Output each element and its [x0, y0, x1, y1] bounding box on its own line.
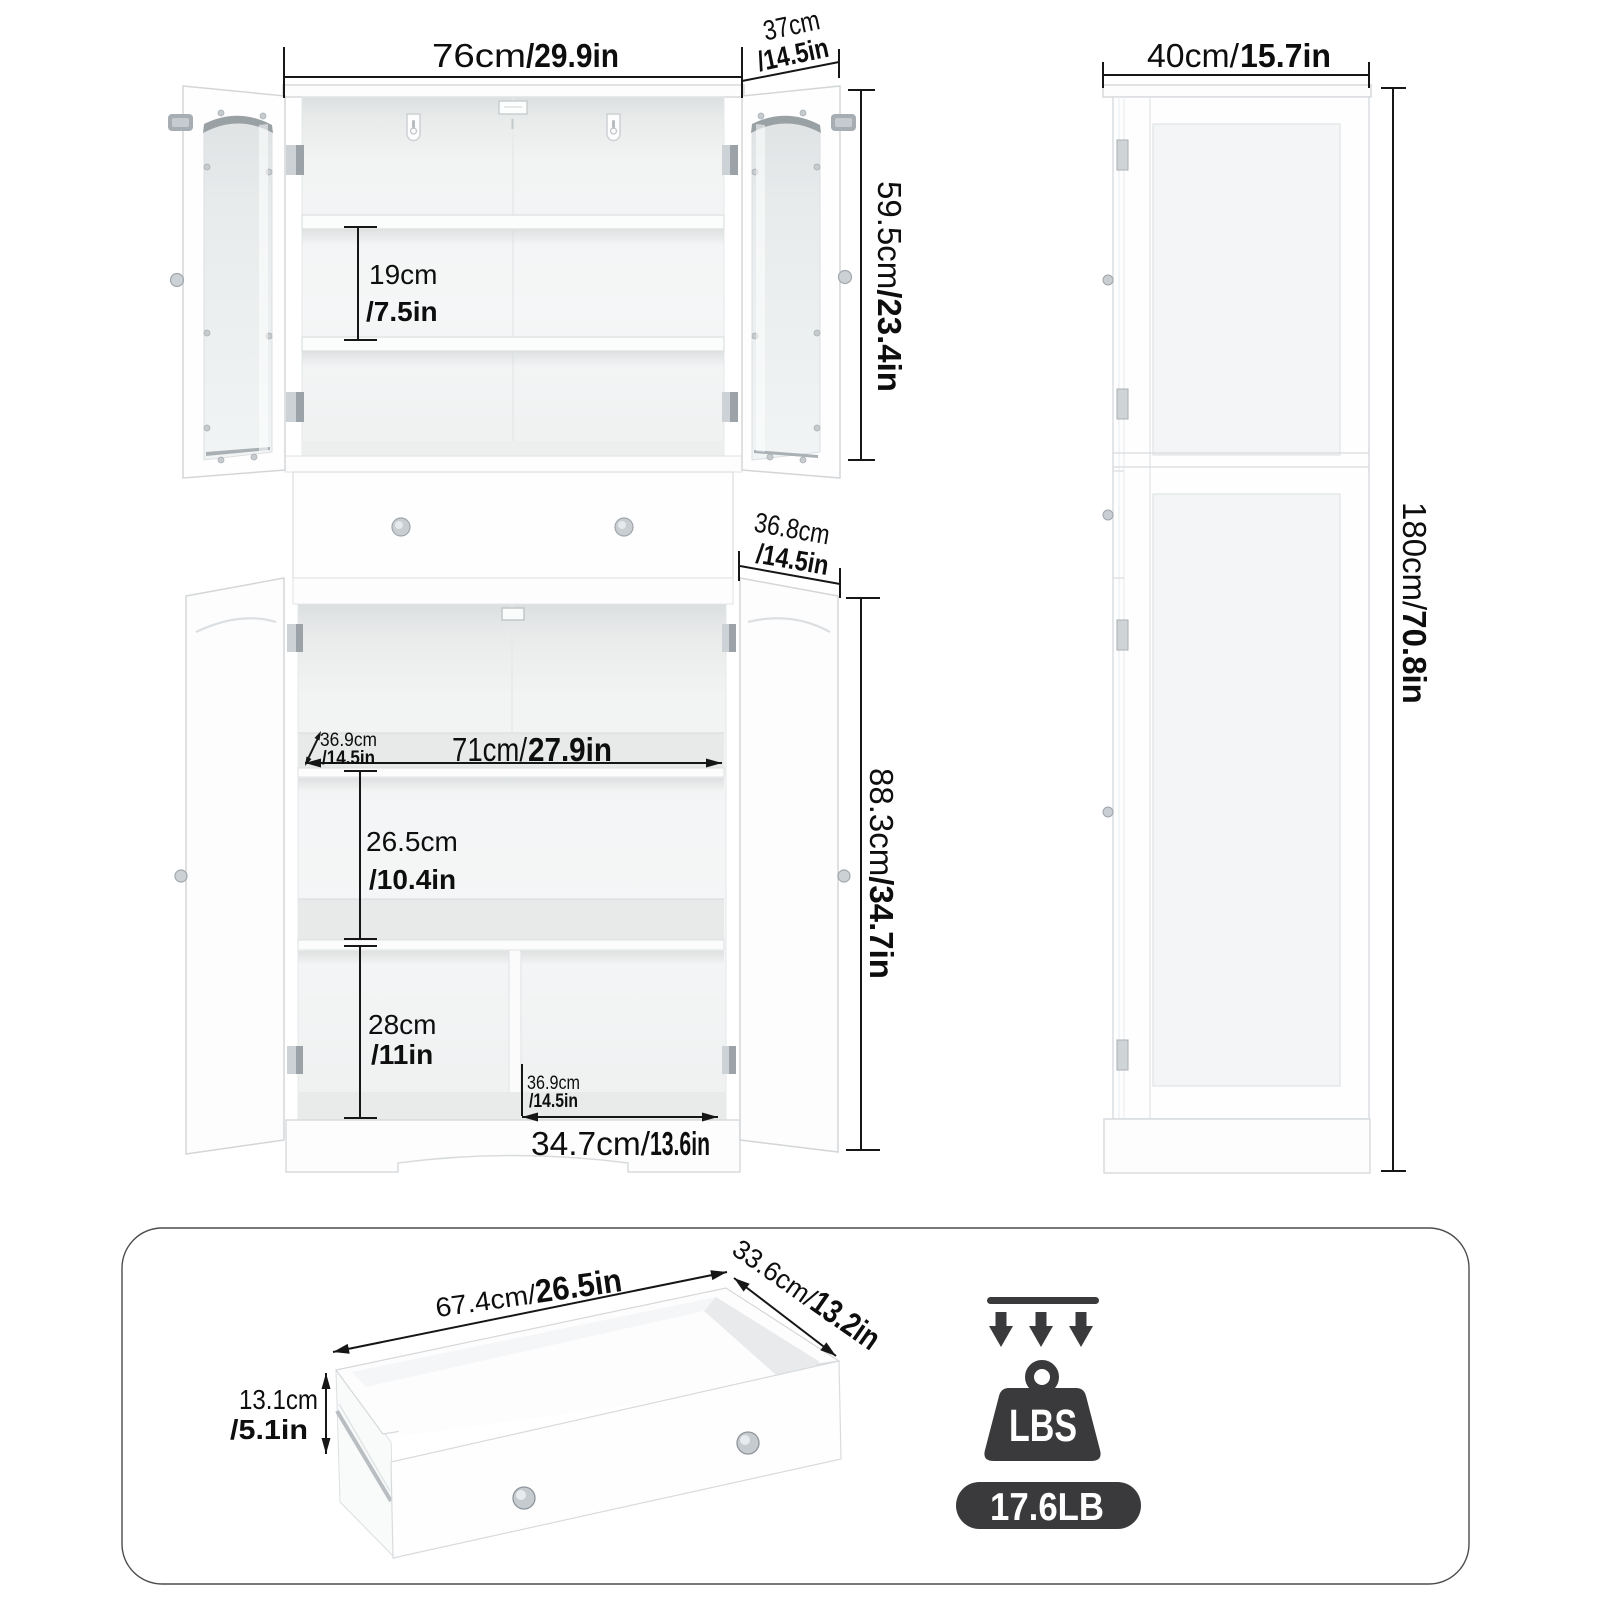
svg-text:13.1cm: 13.1cm [239, 1384, 318, 1415]
svg-text:LBS: LBS [1009, 1400, 1077, 1451]
svg-text:76cm: 76cm [432, 37, 526, 74]
svg-text:180cm/70.8in: 180cm/70.8in [1396, 502, 1433, 704]
svg-text:13.6in: 13.6in [650, 1125, 710, 1162]
svg-text:/5.1in: /5.1in [230, 1414, 308, 1445]
svg-text:/7.5in: /7.5in [366, 296, 438, 327]
svg-text:27.9in: 27.9in [528, 731, 612, 768]
svg-text:17.6LB: 17.6LB [990, 1486, 1104, 1529]
svg-text:/29.9in: /29.9in [526, 37, 619, 74]
svg-text:/14.5in: /14.5in [529, 1091, 578, 1112]
svg-text:/14.5in: /14.5in [322, 748, 375, 769]
svg-text:19cm: 19cm [369, 259, 437, 290]
svg-text:/10.4in: /10.4in [369, 864, 456, 895]
svg-text:/11in: /11in [371, 1039, 433, 1070]
svg-text:88.3cm/34.7in: 88.3cm/34.7in [863, 768, 900, 979]
svg-text:71cm/: 71cm/ [452, 731, 528, 768]
svg-text:59.5cm/23.4in: 59.5cm/23.4in [871, 181, 908, 392]
svg-text:26.5cm: 26.5cm [366, 826, 458, 857]
svg-text:40cm/: 40cm/ [1147, 37, 1240, 74]
svg-text:34.7cm/: 34.7cm/ [531, 1125, 651, 1162]
svg-text:28cm: 28cm [368, 1009, 436, 1040]
svg-text:15.7in: 15.7in [1240, 37, 1331, 74]
